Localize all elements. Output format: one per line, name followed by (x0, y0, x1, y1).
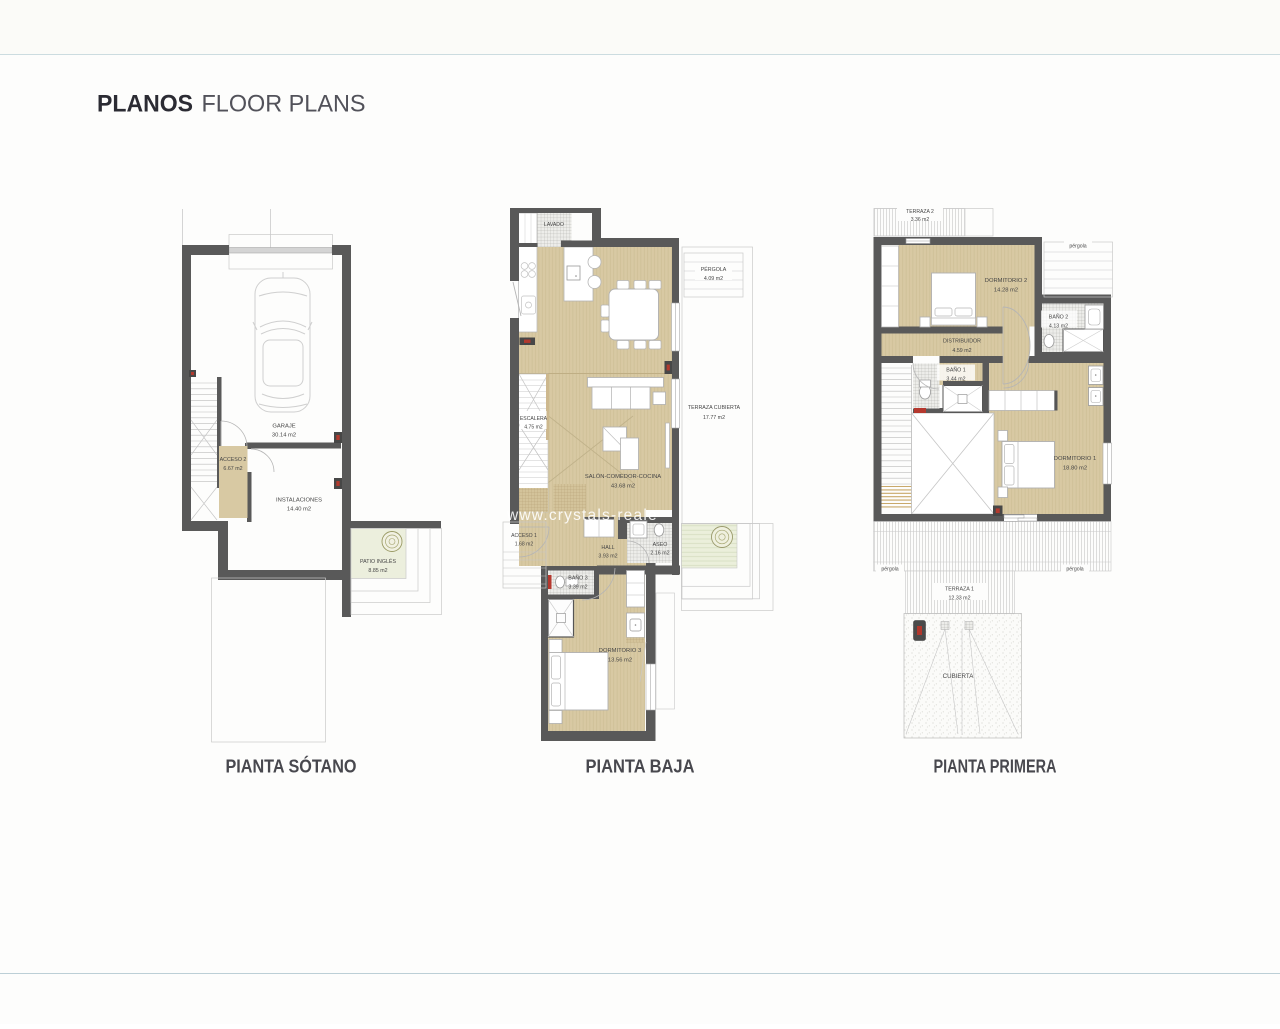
svg-text:1.68 m2: 1.68 m2 (515, 542, 534, 548)
svg-text:pérgola: pérgola (881, 567, 898, 573)
svg-text:3.93 m2: 3.93 m2 (598, 554, 617, 560)
svg-text:pérgola: pérgola (1069, 244, 1086, 250)
svg-text:13.56 m2: 13.56 m2 (608, 658, 632, 664)
svg-text:3.39 m2: 3.39 m2 (568, 585, 587, 591)
svg-text:FLOOR PLANS: FLOOR PLANS (202, 91, 366, 118)
svg-text:DORMITORIO 1: DORMITORIO 1 (1054, 456, 1096, 462)
svg-text:ACCESO 1: ACCESO 1 (511, 533, 537, 539)
svg-text:2.16 m2: 2.16 m2 (650, 551, 669, 557)
svg-text:ASEO: ASEO (653, 542, 668, 548)
svg-text:14.40 m2: 14.40 m2 (287, 507, 311, 513)
svg-text:TERRAZA 2: TERRAZA 2 (906, 209, 934, 215)
svg-text:PÉRGOLA: PÉRGOLA (701, 266, 727, 273)
svg-text:DORMITORIO 2: DORMITORIO 2 (985, 278, 1027, 284)
svg-text:www.crystals-reale: www.crystals-reale (506, 507, 658, 524)
svg-text:CUBIERTA: CUBIERTA (943, 673, 975, 680)
svg-text:PIANTA BAJA: PIANTA BAJA (586, 756, 695, 777)
svg-text:3.44 m2: 3.44 m2 (946, 377, 965, 383)
svg-text:3.36 m2: 3.36 m2 (911, 217, 930, 223)
svg-text:ESCALERA: ESCALERA (520, 416, 548, 422)
svg-text:PATIO INGLÉS: PATIO INGLÉS (360, 558, 396, 565)
svg-text:LAVADO: LAVADO (544, 222, 564, 228)
svg-text:DORMITORIO 3: DORMITORIO 3 (599, 648, 641, 654)
svg-text:4.09 m2: 4.09 m2 (704, 276, 723, 282)
svg-text:17.77 m2: 17.77 m2 (703, 415, 725, 421)
svg-text:43.68 m2: 43.68 m2 (611, 484, 635, 490)
svg-text:pérgola: pérgola (1066, 567, 1083, 573)
svg-text:ACCESO 2: ACCESO 2 (220, 457, 247, 463)
svg-text:TERRAZA 1: TERRAZA 1 (945, 587, 974, 593)
svg-text:4.75 m2: 4.75 m2 (524, 425, 543, 431)
svg-text:4.59 m2: 4.59 m2 (952, 348, 971, 354)
svg-text:INSTALACIONES: INSTALACIONES (276, 498, 322, 504)
svg-text:8.85 m2: 8.85 m2 (368, 568, 387, 574)
svg-text:BAÑO 2: BAÑO 2 (1049, 314, 1068, 321)
svg-text:18.80 m2: 18.80 m2 (1063, 466, 1087, 472)
svg-text:30.14 m2: 30.14 m2 (272, 433, 296, 439)
svg-text:4.13 m2: 4.13 m2 (1049, 324, 1068, 330)
svg-text:BAÑO 1: BAÑO 1 (946, 367, 965, 374)
svg-text:BAÑO 3: BAÑO 3 (568, 575, 587, 582)
svg-text:SALÓN-COMEDOR-COCINA: SALÓN-COMEDOR-COCINA (585, 473, 661, 480)
svg-text:PIANTA PRIMERA: PIANTA PRIMERA (934, 756, 1057, 777)
svg-text:DISTRIBUIDOR: DISTRIBUIDOR (943, 339, 981, 345)
svg-text:TERRAZA CUBIERTA: TERRAZA CUBIERTA (688, 405, 741, 411)
svg-text:12.33 m2: 12.33 m2 (948, 596, 970, 602)
svg-text:14.28 m2: 14.28 m2 (994, 288, 1018, 294)
svg-text:PLANOS: PLANOS (97, 91, 193, 118)
svg-text:HALL: HALL (601, 545, 614, 551)
svg-text:PIANTA SÓTANO: PIANTA SÓTANO (226, 756, 357, 777)
svg-text:GARAJE: GARAJE (272, 424, 295, 430)
svg-text:6.67 m2: 6.67 m2 (223, 466, 242, 472)
